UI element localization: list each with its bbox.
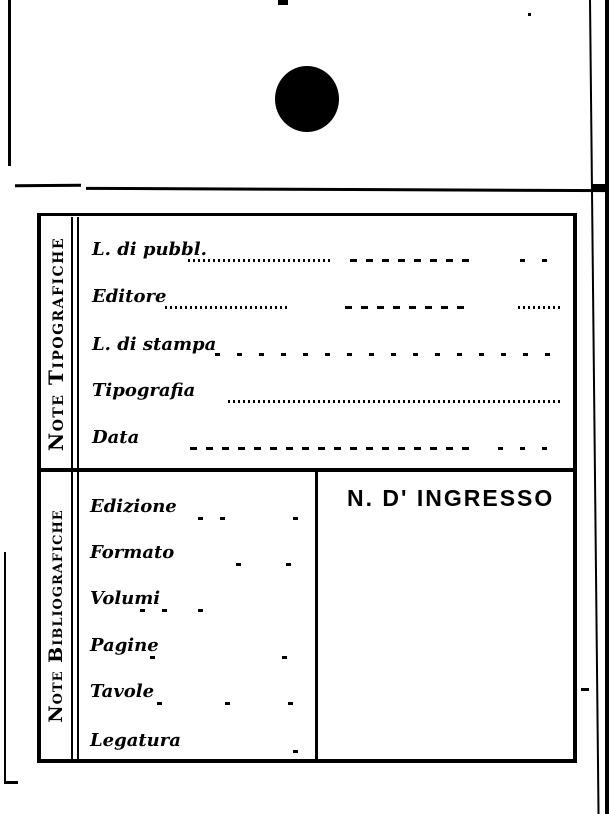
field-label-l-di-pubbl: L. di pubbl. <box>92 239 207 261</box>
scan-artifact-dot <box>528 13 531 16</box>
fill-line <box>286 563 308 566</box>
fill-line <box>288 702 310 705</box>
fill-line <box>198 517 242 520</box>
field-label-data: Data <box>92 427 139 449</box>
field-label-volumi: Volumi <box>90 588 160 610</box>
section-heading-note-tipografiche: Note Tipografiche <box>44 237 68 451</box>
fill-line <box>293 517 308 520</box>
page-edge-mark-bottom-left <box>4 781 18 784</box>
field-label-formato: Formato <box>90 542 174 564</box>
scan-artifact-top-tick <box>278 0 288 5</box>
fill-line <box>188 259 332 262</box>
fill-line <box>293 750 311 753</box>
field-label-editore: Editore <box>92 286 166 308</box>
field-label-edizione: Edizione <box>90 496 177 518</box>
horizontal-rule-end-mark <box>592 184 608 190</box>
page-edge-line-right-outer <box>605 0 609 814</box>
ingresso-number-heading: N. D' INGRESSO <box>347 485 554 512</box>
fill-line <box>520 259 562 262</box>
field-label-legatura: Legatura <box>90 730 181 752</box>
fill-line <box>282 656 294 659</box>
page-edge-line-left-bottom <box>4 552 6 784</box>
fill-line <box>150 656 156 659</box>
fill-line <box>198 609 206 612</box>
side-column-double-rule-1 <box>71 217 73 760</box>
fill-line <box>498 447 562 450</box>
fill-line <box>157 702 173 705</box>
fill-line <box>215 353 560 356</box>
field-label-pagine: Pagine <box>90 635 159 657</box>
fill-line <box>140 609 168 612</box>
field-label-tipografia: Tipografia <box>92 380 195 402</box>
fill-line <box>190 447 475 450</box>
fill-line <box>228 400 560 403</box>
fill-line <box>225 702 237 705</box>
fill-line <box>236 563 244 566</box>
field-label-tavole: Tavole <box>90 681 154 703</box>
page-edge-line-left-top <box>8 0 11 166</box>
fill-line <box>518 306 560 309</box>
side-column-double-rule-2 <box>77 217 79 760</box>
fill-line <box>345 306 470 309</box>
scanned-catalog-card: Note Tipografiche Note Bibliografiche L.… <box>0 0 611 814</box>
scan-artifact-dash <box>581 688 589 691</box>
fill-line <box>350 259 470 262</box>
punch-hole <box>275 66 339 132</box>
section-heading-note-bibliografiche: Note Bibliografiche <box>45 509 67 722</box>
horizontal-rule-left-segment <box>15 184 81 187</box>
page-edge-line-right-inner <box>589 0 600 814</box>
section-divider-line <box>37 468 577 472</box>
horizontal-rule-main <box>86 187 608 192</box>
field-label-l-di-stampa: L. di stampa <box>92 334 216 356</box>
bottom-section-vertical-divider <box>315 472 318 760</box>
fill-line <box>165 306 290 309</box>
